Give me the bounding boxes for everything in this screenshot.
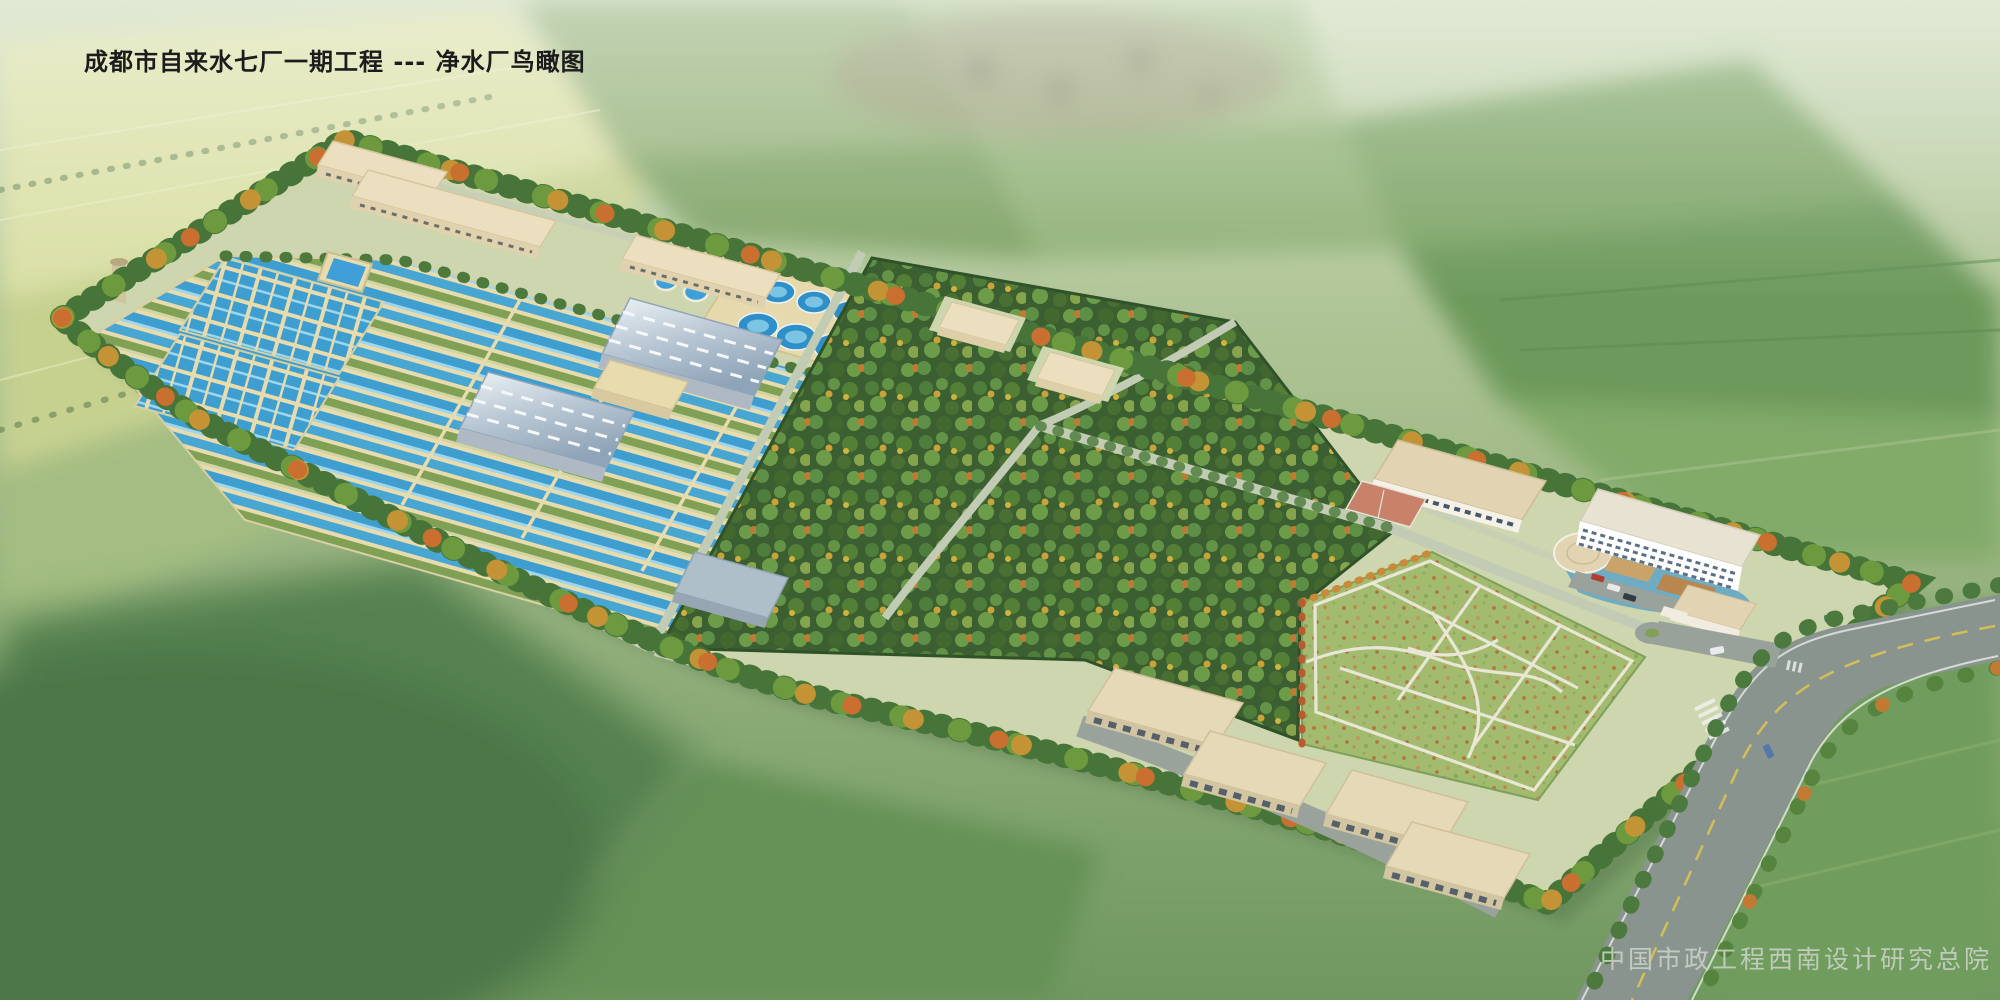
scene-canvas [0,0,2000,1000]
page-title: 成都市自来水七厂一期工程 --- 净水厂鸟瞰图 [84,42,586,77]
credit-text: 中国市政工程西南设计研究总院 [1600,940,1992,976]
entrance-roundabout [1635,622,1669,644]
aerial-rendering: 成都市自来水七厂一期工程 --- 净水厂鸟瞰图 中国市政工程西南设计研究总院 [0,0,2000,1000]
